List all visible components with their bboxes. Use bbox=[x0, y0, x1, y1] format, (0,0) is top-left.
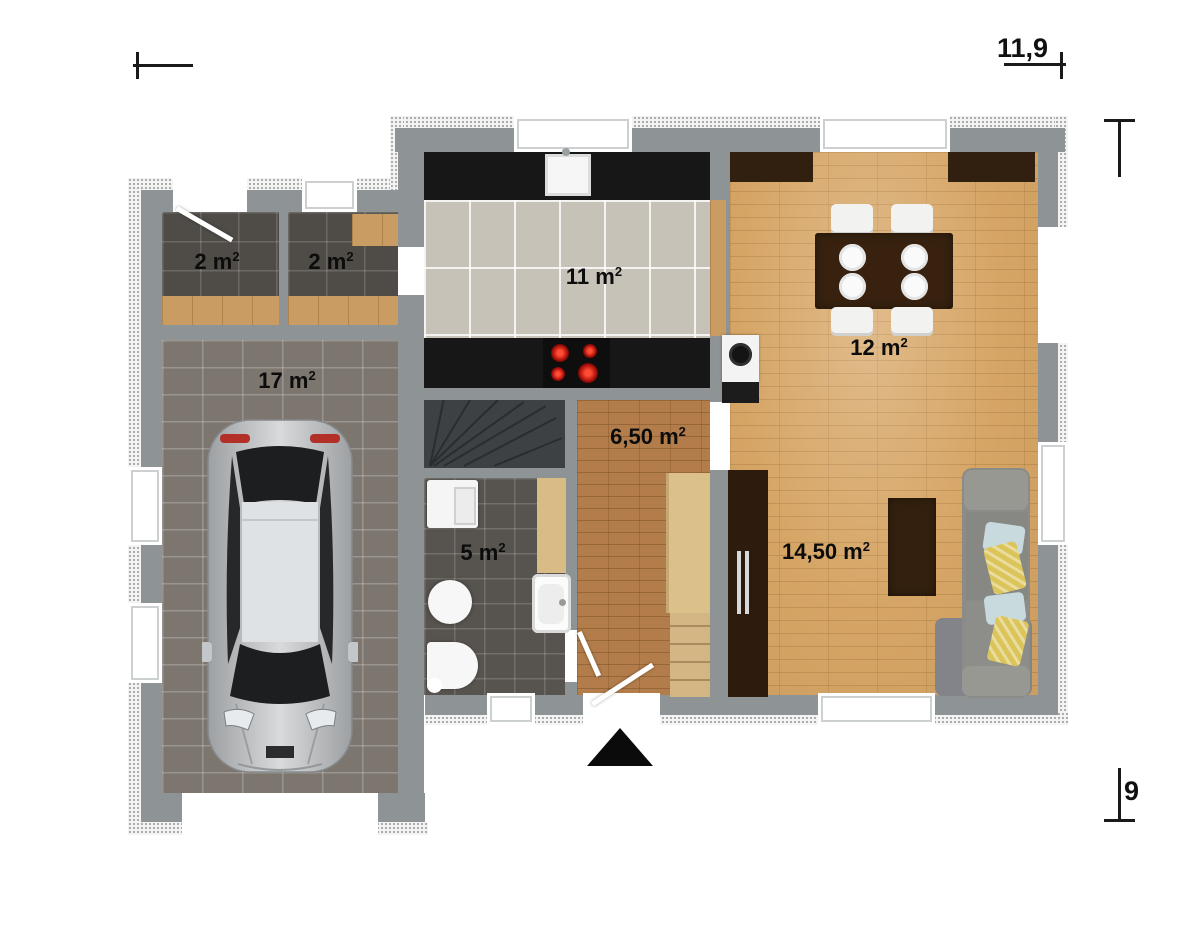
washing-machine-door bbox=[454, 487, 476, 525]
bathroom-window bbox=[487, 693, 535, 725]
dining-chair bbox=[891, 204, 933, 235]
toilet-round bbox=[428, 580, 472, 624]
room-area-text: 2 m bbox=[194, 249, 232, 274]
dining-chair bbox=[831, 307, 873, 336]
room-label-bathroom: 5 m2 bbox=[460, 540, 505, 566]
dimension-line-right-top bbox=[1118, 120, 1121, 177]
terrace-opening bbox=[1038, 227, 1068, 343]
room-label-storage-right: 2 m2 bbox=[308, 249, 353, 275]
sofa-armrest bbox=[964, 470, 1028, 510]
dimension-line-top-right bbox=[1004, 63, 1066, 66]
dimension-tick-top-right bbox=[1060, 52, 1063, 79]
wall-house-top bbox=[395, 128, 1065, 152]
room-label-storage-left: 2 m2 bbox=[194, 249, 239, 275]
room-label-kitchen: 11 m2 bbox=[566, 264, 622, 290]
washing-machine bbox=[427, 480, 478, 528]
dining-chair bbox=[831, 204, 873, 235]
burner-icon bbox=[551, 344, 569, 362]
entrance-opening bbox=[583, 693, 660, 725]
garage-window-2 bbox=[128, 603, 162, 683]
kitchen-sink bbox=[545, 154, 591, 196]
kitchen-faucet bbox=[562, 148, 570, 156]
wall-house-left bbox=[398, 128, 424, 795]
wall-stairs-bath-divider bbox=[424, 468, 565, 478]
dimension-height-label: 9 bbox=[1124, 776, 1139, 807]
room-area-sup: 2 bbox=[498, 540, 505, 555]
bath-cabinet bbox=[537, 478, 566, 573]
dining-window bbox=[820, 116, 950, 152]
storage-right-wood-block bbox=[352, 214, 400, 246]
hall-wardrobe bbox=[666, 473, 710, 613]
wall-storage-divider bbox=[279, 212, 288, 325]
sideboard-right bbox=[948, 152, 1035, 182]
storage-right-window bbox=[302, 178, 357, 212]
sideboard-left bbox=[730, 152, 813, 182]
entrance-marker-triangle bbox=[587, 728, 653, 766]
burner-icon bbox=[578, 363, 598, 383]
wall-kitchen-hall-divider bbox=[424, 388, 710, 400]
room-area-sup: 2 bbox=[308, 368, 315, 383]
bathroom-doorway bbox=[565, 630, 577, 682]
floor-plan-canvas: 2 m2 2 m2 17 m2 11 m2 12 m2 6,50 m2 5 m2… bbox=[0, 0, 1200, 947]
room-area-text: 12 m bbox=[850, 335, 900, 360]
hall-living-doorway bbox=[710, 402, 730, 470]
dimension-tick-top-left bbox=[136, 52, 139, 79]
bath-fixture-dot bbox=[427, 678, 442, 693]
room-area-sup: 2 bbox=[900, 335, 907, 350]
staircase bbox=[424, 398, 565, 468]
burner-icon bbox=[583, 344, 597, 358]
dining-table bbox=[815, 233, 953, 309]
dining-chair bbox=[891, 307, 933, 336]
cabinet-handle bbox=[745, 551, 749, 614]
garage-door-opening bbox=[182, 793, 378, 835]
storage-left-wood-shelf bbox=[162, 296, 279, 325]
wall-house-right bbox=[1038, 128, 1058, 715]
storage-kitchen-opening bbox=[398, 247, 424, 295]
room-label-garage: 17 m2 bbox=[258, 368, 315, 394]
garage-window-1 bbox=[128, 467, 162, 545]
storage-right-wood-shelf bbox=[288, 296, 400, 325]
room-area-sup: 2 bbox=[232, 249, 239, 264]
coffee-table bbox=[888, 498, 936, 596]
cabinet-handle bbox=[737, 551, 741, 614]
burner-icon bbox=[551, 367, 565, 381]
storage-left-door-opening bbox=[173, 178, 247, 212]
room-area-text: 6,50 m bbox=[610, 424, 679, 449]
hall-wardrobe-rail bbox=[670, 613, 710, 697]
plate-icon bbox=[901, 273, 928, 300]
room-area-sup: 2 bbox=[863, 539, 870, 554]
room-area-sup: 2 bbox=[679, 424, 686, 439]
dimension-width-label: 11,9 bbox=[997, 33, 1048, 64]
dimension-line-top-left bbox=[133, 64, 193, 67]
wall-storage-garage-divider bbox=[141, 325, 424, 340]
dimension-tick-right-bottom bbox=[1104, 819, 1135, 822]
wall-hall-living bbox=[710, 470, 728, 695]
plate-icon bbox=[839, 244, 866, 271]
plate-icon bbox=[901, 244, 928, 271]
room-area-text: 11 m bbox=[566, 264, 615, 289]
plate-icon bbox=[839, 273, 866, 300]
car bbox=[202, 412, 358, 780]
room-area-sup: 2 bbox=[346, 249, 353, 264]
kitchen-pass-counter bbox=[710, 200, 726, 336]
stove-plate-icon bbox=[729, 343, 752, 366]
room-label-living: 14,50 m2 bbox=[782, 539, 870, 565]
room-label-hall: 6,50 m2 bbox=[610, 424, 686, 450]
room-area-text: 14,50 m bbox=[782, 539, 863, 564]
room-area-text: 2 m bbox=[308, 249, 346, 274]
room-label-dining: 12 m2 bbox=[850, 335, 907, 361]
sofa-armrest bbox=[962, 666, 1030, 696]
wood-stove-base bbox=[722, 382, 759, 403]
dimension-tick-right-top bbox=[1104, 119, 1135, 122]
room-area-text: 5 m bbox=[460, 540, 498, 565]
room-area-sup: 2 bbox=[615, 264, 622, 279]
kitchen-window bbox=[514, 116, 632, 152]
living-side-window bbox=[1038, 442, 1068, 545]
bath-faucet bbox=[559, 599, 566, 606]
room-area-text: 17 m bbox=[258, 368, 308, 393]
dimension-line-right-bottom bbox=[1118, 768, 1121, 821]
living-bottom-window bbox=[818, 693, 935, 725]
